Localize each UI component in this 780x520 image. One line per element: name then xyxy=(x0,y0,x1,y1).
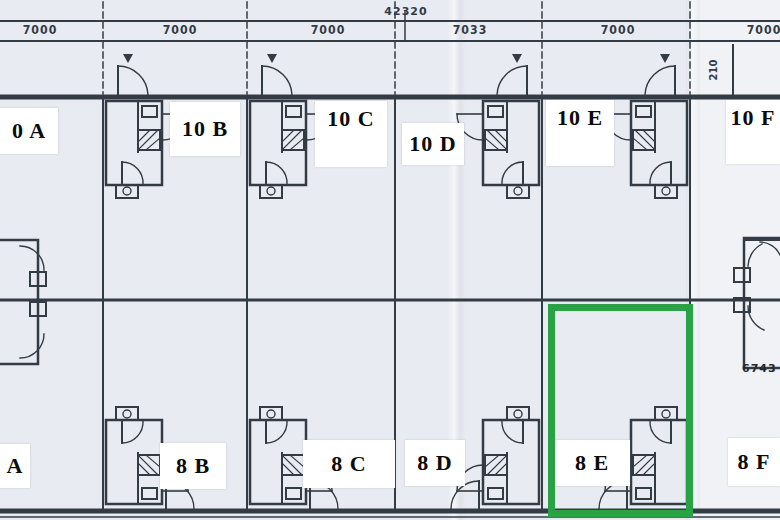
bay-dimension-label: 7000 xyxy=(595,24,641,38)
unit-label-10F[interactable]: 10 F xyxy=(726,100,780,164)
unit-label-8D[interactable]: 8 D xyxy=(405,440,465,486)
bay-dimension-label: 7000 xyxy=(305,24,351,38)
unit-label-10C[interactable]: 10 C xyxy=(315,101,387,167)
side-dimension-note: 210 xyxy=(708,51,719,81)
bay-dimension-label: 7033 xyxy=(447,24,493,38)
floorplan-page: 42320 7000 7000 7000 7033 7000 7000 210 … xyxy=(0,0,780,520)
unit-label-8F[interactable]: 8 F xyxy=(728,438,780,486)
unit-label-10A[interactable]: 0 A xyxy=(0,108,58,154)
left-vestibule xyxy=(0,240,46,364)
bay-dimension-label: 7000 xyxy=(741,24,780,38)
unit-label-8A[interactable]: A xyxy=(0,444,30,488)
unit-label-8B[interactable]: 8 B xyxy=(160,443,226,489)
bay-dimension-label: 7000 xyxy=(17,24,63,38)
right-dimension-note: 6743 xyxy=(742,362,780,375)
unit-label-10B[interactable]: 10 B xyxy=(170,102,240,156)
unit-label-10E[interactable]: 10 E xyxy=(546,100,614,166)
bay-dimension-label: 7000 xyxy=(157,24,203,38)
selected-unit-highlight-8E[interactable] xyxy=(548,304,693,517)
unit-label-10D[interactable]: 10 D xyxy=(402,123,464,165)
unit-label-8C[interactable]: 8 C xyxy=(303,440,395,488)
overall-dimension-label: 42320 xyxy=(376,5,436,18)
right-vestibule xyxy=(734,238,780,368)
